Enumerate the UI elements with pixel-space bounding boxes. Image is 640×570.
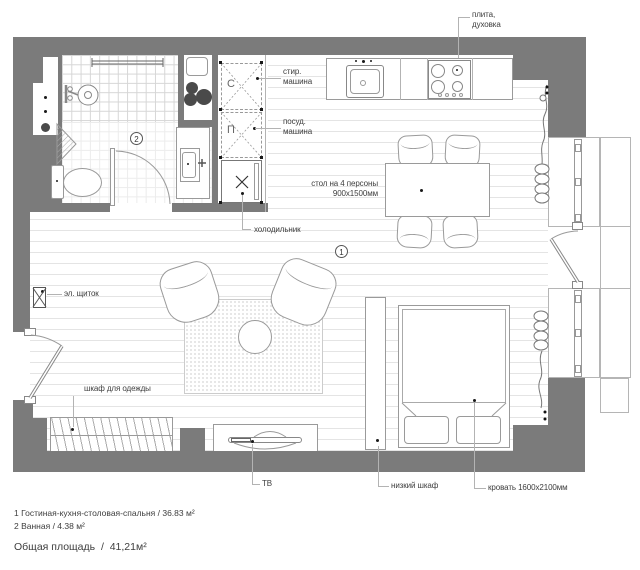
wall-left [13, 37, 30, 332]
counter-divider [472, 58, 473, 100]
entrance-opening [13, 334, 30, 398]
bathroom-door-leaf [110, 148, 115, 206]
leader-fridge [242, 229, 251, 230]
wall-bottom-right-step [513, 425, 585, 472]
toilet-bowl [63, 168, 102, 197]
pipe-riser-dot [44, 96, 47, 99]
leader-bed [474, 488, 486, 489]
wardrobe-anchor-dot [71, 428, 74, 431]
leader-bed [474, 403, 475, 488]
label-fridge: холодильник [254, 225, 300, 235]
label-washer-line1: стир. [283, 67, 301, 77]
wall-top [13, 37, 513, 55]
low-cabinet-anchor-dot [376, 439, 379, 442]
label-low-cabinet: низкий шкаф [391, 481, 438, 491]
washer-letter: С [227, 80, 235, 90]
window-handle [575, 214, 581, 222]
leader-low-cabinet [378, 486, 389, 487]
leader-washer [259, 78, 281, 79]
label-washer-line2: машина [283, 77, 312, 87]
door-jamb [24, 328, 36, 336]
leader-tv [252, 484, 260, 485]
dining-chair [396, 214, 433, 249]
coffee-table [238, 320, 272, 354]
niche-divider-wall-h [178, 120, 212, 127]
electrical-panel-box [33, 287, 46, 308]
bathroom-south-wall-left [30, 203, 110, 212]
fridge-door [254, 163, 259, 200]
label-bed: кровать 1600х2100мм [488, 483, 568, 493]
plumbing-niche-upper [43, 57, 58, 83]
basin-drain [187, 163, 189, 165]
balcony-door-leaf [551, 239, 578, 282]
stove-knob [452, 93, 456, 97]
window-handle [575, 178, 581, 186]
label-stove-line2: духовка [472, 20, 501, 30]
bathroom-right-wall [212, 55, 218, 212]
window-upper-outer [600, 137, 631, 227]
leader-low-cabinet [378, 446, 379, 486]
label-dishwasher-line2: машина [283, 127, 312, 137]
burner [431, 64, 445, 78]
table-anchor-dot [420, 189, 423, 192]
burner [431, 80, 445, 94]
label-table-line2: 900х1500мм [298, 189, 378, 199]
room-marker-living: 1 [335, 245, 348, 258]
stove-anchor-dot [456, 69, 458, 71]
faucet-dot [370, 60, 372, 62]
balcony-outer-lower [600, 378, 629, 413]
wardrobe [50, 417, 173, 452]
tv-soundbar [231, 438, 251, 442]
water-heater-circle [184, 93, 197, 106]
dining-table [385, 163, 490, 217]
label-stove-line1: плита, [472, 10, 495, 20]
label-wardrobe: шкаф для одежды [84, 384, 151, 394]
leader-dishwasher [255, 128, 281, 129]
legend-total-area: Общая площадь / 41,21м² [14, 541, 147, 553]
bed-anchor-dot [473, 399, 476, 402]
floor-plan: С П [0, 0, 640, 570]
balcony-door-jamb [572, 281, 583, 289]
bed-pillow [404, 416, 449, 444]
leader-tv [252, 444, 253, 484]
leader-wardrobe [73, 396, 74, 427]
stove-knob [445, 93, 449, 97]
sink-drain [360, 80, 366, 86]
window-handle [575, 329, 581, 337]
faucet-dot [355, 60, 357, 62]
faucet-dot [362, 60, 365, 63]
pipe-riser-large-dot [41, 123, 50, 132]
room-marker-bathroom: 2 [130, 132, 143, 145]
window-lower-outer [600, 288, 631, 378]
balcony-glazing-line [600, 227, 601, 288]
balcony-door-leaf-inner [551, 239, 578, 282]
balcony-door-jamb [572, 222, 583, 230]
pipe-riser-dot [44, 110, 47, 113]
tv-anchor-dot [251, 440, 254, 443]
window-handle [575, 365, 581, 373]
counter-divider [400, 58, 401, 100]
toilet-button [56, 180, 58, 182]
wall-right-upper [548, 80, 586, 137]
label-electrical: эл. щиток [64, 289, 99, 299]
wall-top-right [513, 37, 586, 80]
bed-pillow [456, 416, 501, 444]
stove-knob [459, 93, 463, 97]
window-handle [575, 144, 581, 152]
burner [452, 81, 463, 92]
window-handle [575, 295, 581, 303]
water-heater-circle [196, 89, 212, 105]
stove-knob [438, 93, 442, 97]
shower-floor-tiles [62, 55, 178, 122]
leader-fridge [242, 195, 243, 230]
low-cabinet [365, 297, 386, 450]
leader-electrical [47, 294, 62, 295]
dishwasher-letter: П [227, 126, 235, 136]
label-tv: ТВ [262, 479, 272, 489]
wall-bottom [13, 451, 585, 472]
bed-blanket [402, 309, 506, 403]
boiler-unit [186, 57, 208, 76]
dining-chair [442, 214, 479, 249]
leader-stove [458, 17, 470, 18]
balcony-glazing-line [630, 227, 631, 288]
label-dishwasher-line1: посуд. [283, 117, 306, 127]
legend-room1: 1 Гостиная-кухня-столовая-спальня / 36.8… [14, 508, 195, 518]
bathroom-south-wall-right [172, 203, 268, 212]
niche-divider-wall [178, 55, 184, 123]
washbasin-inner [182, 152, 196, 178]
door-jamb [24, 396, 36, 404]
balcony-door-arc [551, 231, 578, 239]
label-table-line1: стол на 4 персоны [298, 179, 378, 189]
wall-pier [180, 428, 205, 455]
leader-stove [458, 17, 459, 58]
electrical-anchor-dot [41, 290, 44, 293]
legend-room2: 2 Ванная / 4.38 м² [14, 521, 85, 531]
